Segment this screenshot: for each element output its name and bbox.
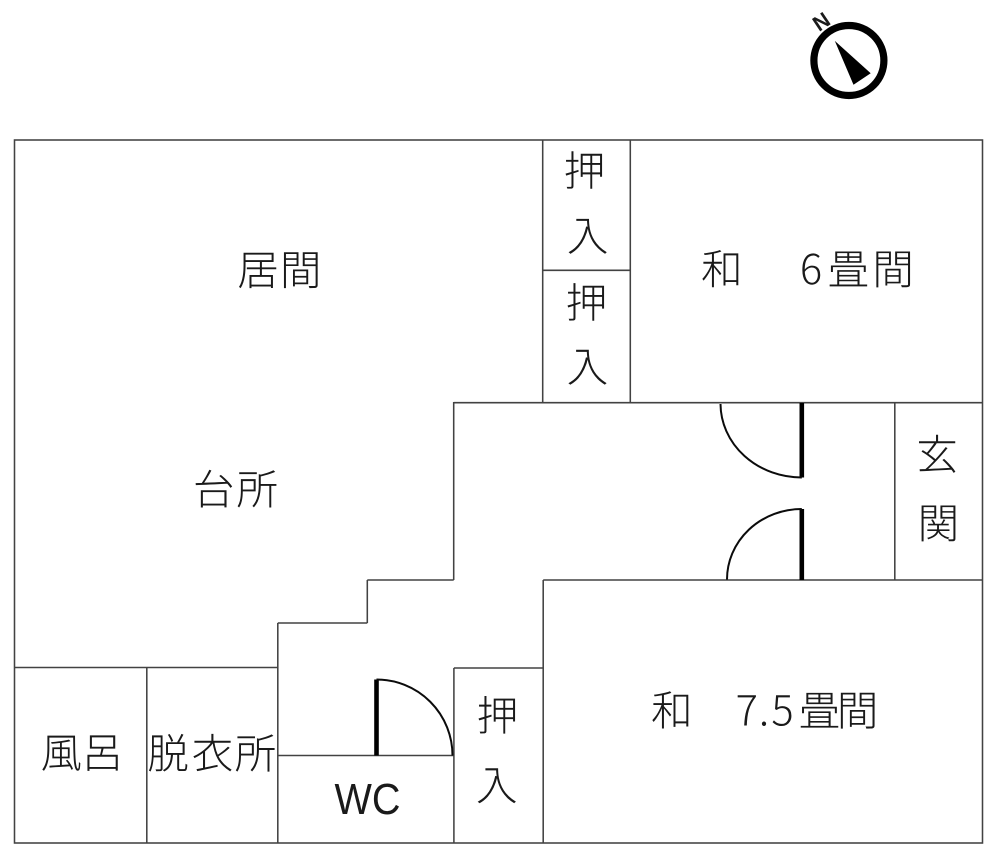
svg-text:WC: WC: [335, 774, 401, 823]
